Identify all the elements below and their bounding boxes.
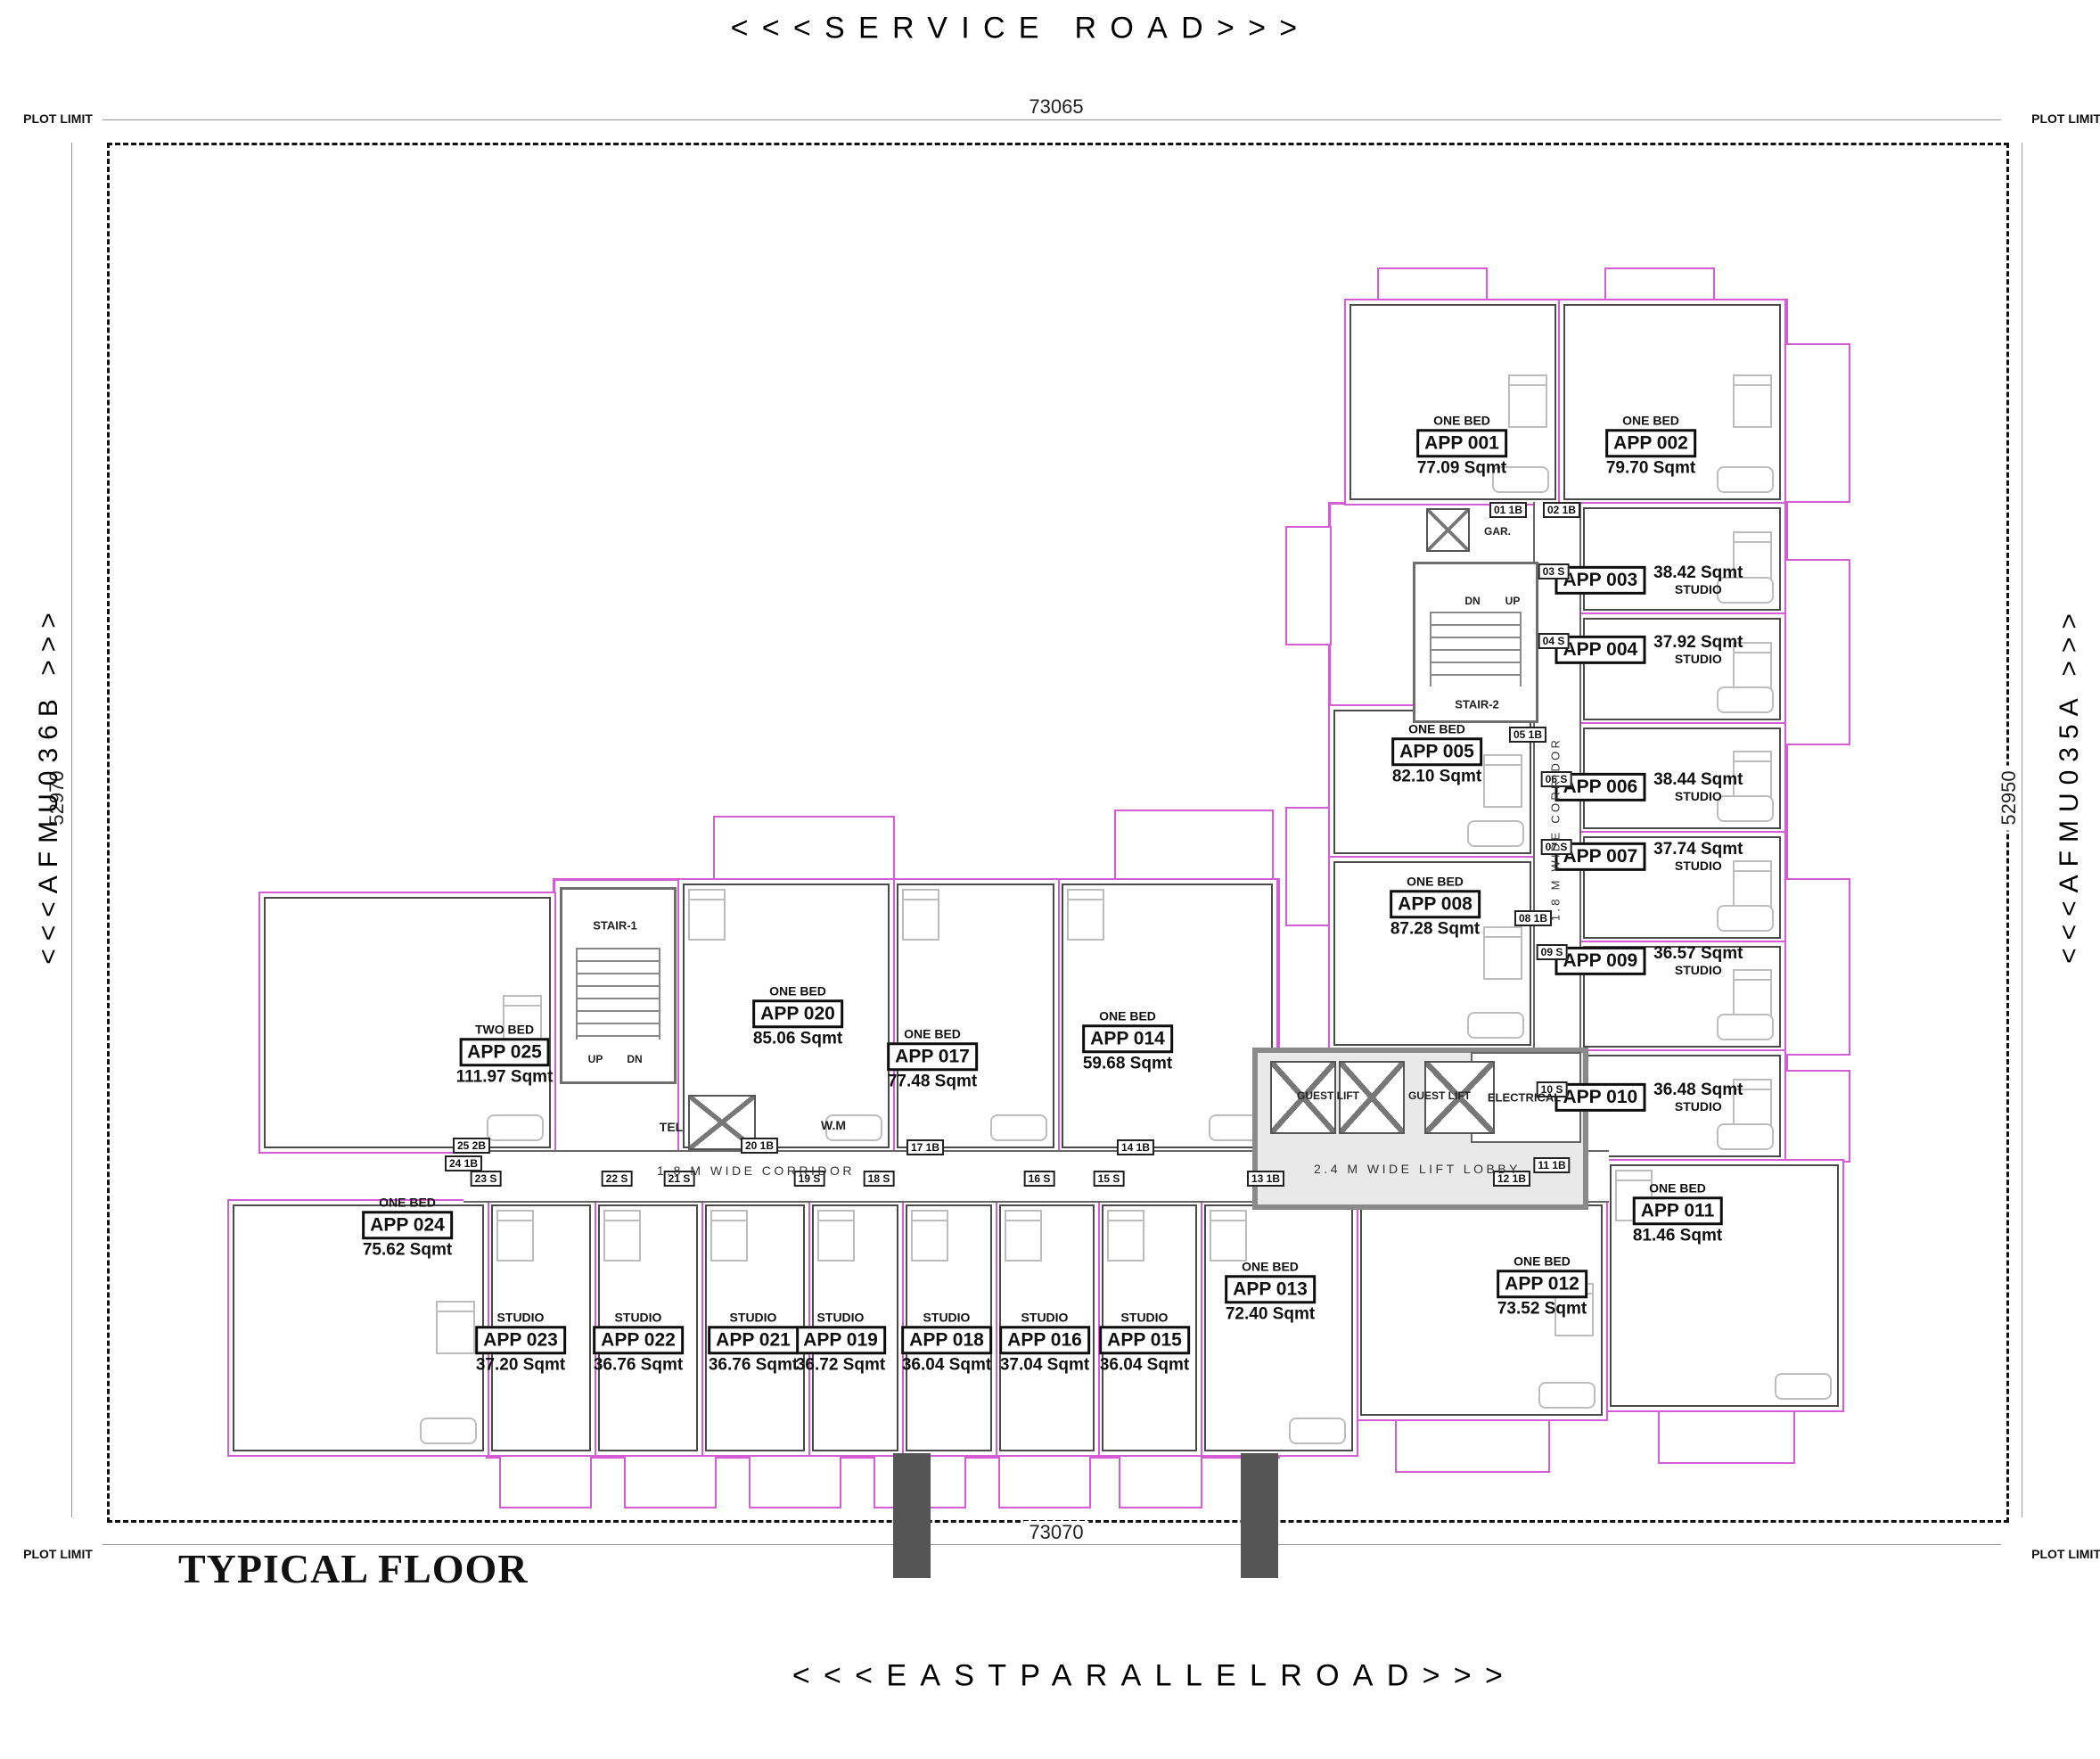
sofa-furniture [487, 1114, 544, 1141]
sofa-furniture [1717, 1014, 1774, 1040]
unit-tag-app-002: 02 1B [1543, 502, 1580, 518]
sofa-furniture [1467, 820, 1524, 847]
unit-type-label: STUDIO [730, 1310, 777, 1326]
apartment-label-app-022: STUDIOAPP 02236.76 Sqmt [593, 1310, 684, 1376]
unit-number-label: APP 005 [1391, 737, 1482, 766]
unit-number-label: APP 013 [1225, 1275, 1316, 1303]
unit-area-label: 36.72 Sqmt [796, 1354, 885, 1376]
unit-info-column: 36.57 SqmtSTUDIO [1653, 945, 1743, 977]
unit-type-label: STUDIO [1675, 964, 1722, 977]
unit-type-label: STUDIO [817, 1310, 865, 1326]
apartment-label-app-006: APP 00638.44 SqmtSTUDIO [1555, 771, 1743, 803]
bed-furniture [603, 1210, 641, 1262]
unit-area-label: 77.09 Sqmt [1417, 457, 1506, 479]
unit-area-label: 72.40 Sqmt [1226, 1303, 1315, 1325]
unit-tag-app-004: 04 S [1538, 633, 1570, 649]
apartment-label-app-004: APP 00437.92 SqmtSTUDIO [1555, 634, 1743, 666]
sofa-furniture [1289, 1418, 1346, 1444]
room-app-004 [1578, 612, 1786, 726]
unit-number-label: APP 012 [1497, 1270, 1587, 1298]
sofa-furniture [1775, 1373, 1832, 1400]
sofa-furniture [1538, 1382, 1596, 1409]
apartment-label-app-012: ONE BEDAPP 01273.52 Sqmt [1497, 1253, 1587, 1319]
balcony [998, 1453, 1091, 1508]
balcony [749, 1453, 841, 1508]
unit-area-label: 111.97 Sqmt [456, 1066, 554, 1088]
apartment-label-app-001: ONE BEDAPP 00177.09 Sqmt [1416, 413, 1507, 479]
unit-tag-app-023: 23 S [471, 1171, 502, 1187]
balcony [1114, 810, 1274, 882]
unit-area-label: 73.52 Sqmt [1497, 1298, 1587, 1319]
unit-type-label: ONE BED [769, 983, 826, 999]
balcony [499, 1453, 592, 1508]
room-app-003 [1578, 502, 1786, 616]
unit-type-label: STUDIO [497, 1310, 545, 1326]
dimension-line-left [71, 143, 72, 1517]
stair-2-label: STAIR-2 [1455, 698, 1499, 711]
electrical-label: ELECTRICAL [1488, 1091, 1561, 1105]
stair-treads [576, 948, 660, 1040]
telephone-label: TEL [660, 1120, 683, 1134]
unit-area-label: 36.76 Sqmt [709, 1354, 798, 1376]
unit-type-label: TWO BED [475, 1022, 534, 1038]
unit-number-label: APP 021 [708, 1326, 799, 1354]
unit-type-label: ONE BED [1622, 413, 1679, 429]
plot-limit-top-right: PLOT LIMIT [2031, 111, 2100, 126]
unit-area-label: 75.62 Sqmt [363, 1239, 452, 1261]
apartment-label-app-005: ONE BEDAPP 00582.10 Sqmt [1391, 721, 1482, 787]
unit-number-label: APP 016 [999, 1326, 1090, 1354]
balcony [1395, 1418, 1550, 1473]
unit-area-label: 79.70 Sqmt [1606, 457, 1695, 479]
unit-type-label: ONE BED [1433, 413, 1490, 429]
unit-area-label: 36.04 Sqmt [902, 1354, 991, 1376]
apartment-label-app-003: APP 00338.42 SqmtSTUDIO [1555, 564, 1743, 596]
plot-limit-top-left: PLOT LIMIT [23, 111, 93, 126]
unit-area-label: 36.76 Sqmt [594, 1354, 683, 1376]
unit-tag-app-011: 11 1B [1533, 1157, 1570, 1173]
bed-furniture [911, 1210, 948, 1262]
unit-tag-app-020: 20 1B [741, 1138, 778, 1154]
unit-type-label: ONE BED [379, 1195, 436, 1211]
unit-number-label: APP 024 [362, 1211, 453, 1239]
unit-area-label: 38.42 Sqmt [1653, 564, 1743, 583]
unit-info-column: 36.48 SqmtSTUDIO [1653, 1081, 1743, 1114]
unit-number-label: APP 023 [475, 1326, 566, 1354]
unit-type-label: STUDIO [1021, 1310, 1069, 1326]
dimension-right-value: 52950 [1997, 765, 2021, 830]
dimension-top-value: 73065 [1023, 95, 1088, 119]
bed-furniture [688, 889, 726, 941]
balcony [1783, 559, 1850, 745]
unit-tag-app-017: 17 1B [906, 1139, 944, 1155]
floor-plan-canvas: <<<SERVICE ROAD>>> <<<EASTPARALLELROAD>>… [0, 0, 2100, 1759]
unit-area-label: 38.44 Sqmt [1653, 771, 1743, 790]
structural-pier [893, 1453, 931, 1578]
unit-tag-app-003: 03 S [1538, 563, 1570, 579]
apartment-label-app-018: STUDIOAPP 01836.04 Sqmt [901, 1310, 992, 1376]
afmu035a-road-label: <<<AFMU035A >>> [2055, 605, 2085, 964]
unit-tag-app-025: 25 2B [453, 1138, 490, 1154]
unit-tag-app-015: 15 S [1094, 1171, 1125, 1187]
sofa-furniture [420, 1418, 477, 1444]
unit-area-label: 59.68 Sqmt [1083, 1053, 1172, 1074]
stair-1-block [560, 887, 677, 1084]
guest-lift-label: GUEST LIFT [1297, 1089, 1359, 1102]
unit-number-label: APP 019 [795, 1326, 886, 1354]
unit-type-label: STUDIO [923, 1310, 971, 1326]
afmu036b-road-label: <<<AFMU036B >>> [34, 604, 64, 965]
apartment-label-app-015: STUDIOAPP 01536.04 Sqmt [1099, 1310, 1190, 1376]
bed-furniture [1508, 374, 1547, 428]
dn-label: DN [627, 1053, 642, 1065]
structural-pier [1241, 1453, 1278, 1578]
bed-furniture [1107, 1210, 1144, 1262]
apartment-label-app-024: ONE BEDAPP 02475.62 Sqmt [362, 1195, 453, 1261]
apartment-label-app-007: APP 00737.74 SqmtSTUDIO [1555, 841, 1743, 873]
unit-type-label: STUDIO [1675, 1100, 1722, 1114]
stair-1-label: STAIR-1 [593, 919, 637, 933]
balcony [624, 1453, 717, 1508]
bed-furniture [902, 889, 939, 941]
dn-label: DN [1464, 595, 1480, 607]
unit-type-label: ONE BED [1513, 1253, 1571, 1270]
apartment-label-app-002: ONE BEDAPP 00279.70 Sqmt [1605, 413, 1696, 479]
apartment-label-app-011: ONE BEDAPP 01181.46 Sqmt [1633, 1180, 1723, 1246]
apartment-label-app-023: STUDIOAPP 02337.20 Sqmt [475, 1310, 566, 1376]
unit-tag-app-005: 05 1B [1509, 727, 1546, 743]
unit-tag-app-013: 13 1B [1247, 1171, 1284, 1187]
sofa-furniture [1717, 466, 1774, 493]
unit-number-label: APP 002 [1605, 429, 1696, 457]
unit-type-label: ONE BED [904, 1026, 961, 1042]
bed-furniture [436, 1301, 475, 1354]
dimension-bottom-value: 73070 [1023, 1521, 1088, 1544]
unit-type-label: STUDIO [615, 1310, 662, 1326]
bed-furniture [1483, 754, 1522, 808]
washing-machine-label: W.M [821, 1118, 846, 1132]
balcony [1119, 1453, 1202, 1508]
unit-number-label: APP 009 [1555, 947, 1646, 975]
room-app-017 [891, 878, 1060, 1154]
unit-area-label: 82.10 Sqmt [1392, 766, 1481, 787]
unit-info-column: 37.92 SqmtSTUDIO [1653, 634, 1743, 666]
garbage-chute-shaft [1426, 508, 1470, 552]
drawing-title: TYPICAL FLOOR [178, 1545, 529, 1592]
unit-number-label: APP 001 [1416, 429, 1507, 457]
unit-type-label: ONE BED [1242, 1259, 1299, 1275]
unit-area-label: 36.57 Sqmt [1653, 945, 1743, 964]
apartment-label-app-014: ONE BEDAPP 01459.68 Sqmt [1082, 1008, 1173, 1074]
unit-tag-app-016: 16 S [1024, 1171, 1055, 1187]
lift-lobby-label: 2.4 M WIDE LIFT LOBBY [1314, 1162, 1521, 1176]
bed-furniture [496, 1210, 534, 1262]
unit-tag-app-008: 08 1B [1514, 910, 1552, 926]
unit-area-label: 37.20 Sqmt [476, 1354, 565, 1376]
stair-treads [1430, 612, 1522, 686]
guest-lift-label: GUEST LIFT [1408, 1089, 1471, 1102]
apartment-label-app-020: ONE BEDAPP 02085.06 Sqmt [752, 983, 843, 1049]
unit-tag-app-024: 24 1B [445, 1155, 482, 1171]
plot-limit-bottom-left: PLOT LIMIT [23, 1547, 93, 1561]
unit-tag-app-014: 14 1B [1117, 1139, 1154, 1155]
unit-area-label: 37.74 Sqmt [1653, 841, 1743, 859]
unit-tag-app-001: 01 1B [1489, 502, 1527, 518]
bed-furniture [710, 1210, 748, 1262]
unit-area-label: 87.28 Sqmt [1390, 918, 1480, 940]
unit-type-label: ONE BED [1408, 721, 1465, 737]
unit-info-column: 37.74 SqmtSTUDIO [1653, 841, 1743, 873]
balcony [1783, 1070, 1850, 1163]
corridor-horizontal-label: 1.8 M WIDE CORRIDOR [657, 1163, 855, 1178]
bed-furniture [1210, 1210, 1247, 1262]
unit-number-label: APP 010 [1555, 1083, 1646, 1112]
unit-type-label: ONE BED [1407, 874, 1464, 890]
unit-number-label: APP 018 [901, 1326, 992, 1354]
unit-info-column: 38.44 SqmtSTUDIO [1653, 771, 1743, 803]
balcony [1377, 267, 1488, 303]
balcony [713, 816, 895, 882]
apartment-label-app-008: ONE BEDAPP 00887.28 Sqmt [1390, 874, 1481, 940]
apartment-label-app-009: APP 00936.57 SqmtSTUDIO [1555, 945, 1743, 977]
service-road-label: <<<SERVICE ROAD>>> [731, 12, 1311, 46]
sofa-furniture [1467, 1012, 1524, 1039]
unit-number-label: APP 022 [593, 1326, 684, 1354]
unit-number-label: APP 015 [1099, 1326, 1190, 1354]
unit-number-label: APP 025 [459, 1038, 550, 1066]
garbage-label: GAR. [1484, 525, 1511, 538]
unit-number-label: APP 014 [1082, 1024, 1173, 1053]
unit-number-label: APP 008 [1390, 890, 1481, 918]
dimension-line-top [103, 119, 2001, 120]
unit-area-label: 77.48 Sqmt [888, 1071, 977, 1092]
bed-furniture [1067, 889, 1104, 941]
unit-area-label: 36.04 Sqmt [1100, 1354, 1189, 1376]
bed-furniture [1733, 374, 1772, 428]
sofa-furniture [990, 1114, 1047, 1141]
east-parallel-road-label: <<<EASTPARALLELROAD>>> [792, 1659, 1516, 1694]
unit-area-label: 37.04 Sqmt [1000, 1354, 1089, 1376]
unit-type-label: STUDIO [1675, 583, 1722, 596]
unit-info-column: 38.42 SqmtSTUDIO [1653, 564, 1743, 596]
bed-furniture [1483, 926, 1522, 980]
unit-area-label: 85.06 Sqmt [753, 1028, 842, 1049]
unit-tag-app-009: 09 S [1537, 944, 1568, 960]
apartment-label-app-013: ONE BEDAPP 01372.40 Sqmt [1225, 1259, 1316, 1325]
apartment-label-app-010: APP 01036.48 SqmtSTUDIO [1555, 1081, 1743, 1114]
plot-limit-bottom-right: PLOT LIMIT [2031, 1547, 2100, 1561]
unit-area-label: 81.46 Sqmt [1633, 1225, 1722, 1246]
up-label: UP [588, 1053, 603, 1065]
room-app-013 [1199, 1199, 1358, 1457]
sofa-furniture [1717, 686, 1774, 713]
unit-tag-app-018: 18 S [864, 1171, 895, 1187]
balcony [1658, 1409, 1795, 1464]
bed-furniture [817, 1210, 855, 1262]
unit-type-label: ONE BED [1649, 1180, 1706, 1196]
unit-area-label: 36.48 Sqmt [1653, 1081, 1743, 1100]
unit-tag-app-022: 22 S [602, 1171, 633, 1187]
apartment-label-app-019: STUDIOAPP 01936.72 Sqmt [795, 1310, 886, 1376]
unit-number-label: APP 017 [887, 1042, 978, 1071]
unit-type-label: STUDIO [1121, 1310, 1169, 1326]
corridor-vertical-label: 1.8 M WIDE CORRIDOR [1549, 737, 1563, 921]
unit-area-label: 37.92 Sqmt [1653, 634, 1743, 653]
balcony [1285, 526, 1332, 645]
sofa-furniture [1717, 1123, 1774, 1150]
apartment-label-app-021: STUDIOAPP 02136.76 Sqmt [708, 1310, 799, 1376]
apartment-label-app-016: STUDIOAPP 01637.04 Sqmt [999, 1310, 1090, 1376]
balcony [1285, 807, 1332, 926]
apartment-label-app-025: TWO BEDAPP 025111.97 Sqmt [456, 1022, 554, 1088]
bed-furniture [1005, 1210, 1042, 1262]
unit-type-label: ONE BED [1099, 1008, 1156, 1024]
balcony [1783, 878, 1850, 1056]
unit-number-label: APP 011 [1633, 1196, 1723, 1225]
sofa-furniture [1717, 905, 1774, 932]
apartment-label-app-017: ONE BEDAPP 01777.48 Sqmt [887, 1026, 978, 1092]
up-label: UP [1505, 595, 1521, 607]
unit-number-label: APP 020 [752, 999, 843, 1028]
balcony [1783, 343, 1850, 503]
unit-type-label: STUDIO [1675, 859, 1722, 873]
balcony [1604, 267, 1715, 303]
unit-type-label: STUDIO [1675, 653, 1722, 666]
dimension-line-right [2022, 143, 2022, 1517]
unit-type-label: STUDIO [1675, 790, 1722, 803]
